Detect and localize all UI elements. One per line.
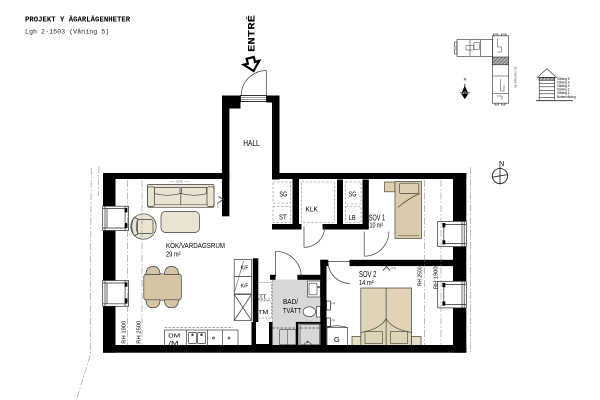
svg-text:vy arkitektur ab: vy arkitektur ab — [514, 66, 518, 88]
svg-text:RH 1900: RH 1900 — [122, 321, 128, 344]
svg-text:RH 2500: RH 2500 — [418, 267, 424, 287]
svg-text:ST: ST — [279, 213, 287, 222]
svg-text:TT: TT — [259, 294, 266, 300]
svg-text:N: N — [499, 159, 504, 168]
svg-text:N: N — [464, 78, 467, 82]
svg-text:FR: FR — [332, 302, 336, 306]
svg-text:SOV 2: SOV 2 — [359, 270, 376, 279]
svg-text:BAD/: BAD/ — [283, 297, 299, 306]
svg-text:SG: SG — [279, 190, 287, 199]
svg-text:2240: 2240 — [176, 180, 183, 184]
svg-text:Lgh 2-1503 (Våning 5): Lgh 2-1503 (Våning 5) — [25, 28, 109, 37]
svg-text:KLK: KLK — [305, 204, 318, 213]
svg-text:RH 1900: RH 1900 — [433, 267, 439, 290]
svg-text:SG: SG — [349, 190, 357, 199]
svg-text:K/F: K/F — [241, 266, 249, 272]
svg-text:K/F: K/F — [241, 284, 249, 290]
svg-text:HALL: HALL — [243, 139, 260, 148]
svg-text:29 m²: 29 m² — [166, 251, 181, 258]
svg-text:FR: FR — [332, 319, 336, 323]
svg-text:SOV 1: SOV 1 — [369, 213, 385, 222]
svg-text:DM: DM — [168, 334, 180, 340]
svg-text:14 m²: 14 m² — [359, 280, 374, 287]
svg-text:PROJEKT Y ÄGARLÄGENHETER: PROJEKT Y ÄGARLÄGENHETER — [25, 16, 131, 25]
svg-text:G: G — [334, 335, 340, 344]
svg-text:LB: LB — [349, 213, 356, 222]
svg-text:ENTRÉ: ENTRÉ — [244, 15, 258, 52]
svg-text:TM: TM — [258, 310, 269, 316]
svg-text:10 m²: 10 m² — [370, 222, 384, 229]
svg-text:FTV: FTV — [216, 202, 220, 208]
svg-text:Bottenvåning: Bottenvåning — [557, 95, 576, 99]
svg-text:RH 2500: RH 2500 — [137, 321, 143, 344]
svg-text:FTI: FTI — [392, 267, 397, 271]
svg-text:KÖK/VARDAGSRUM: KÖK/VARDAGSRUM — [166, 241, 225, 250]
svg-text:TVÄTT: TVÄTT — [283, 306, 301, 315]
